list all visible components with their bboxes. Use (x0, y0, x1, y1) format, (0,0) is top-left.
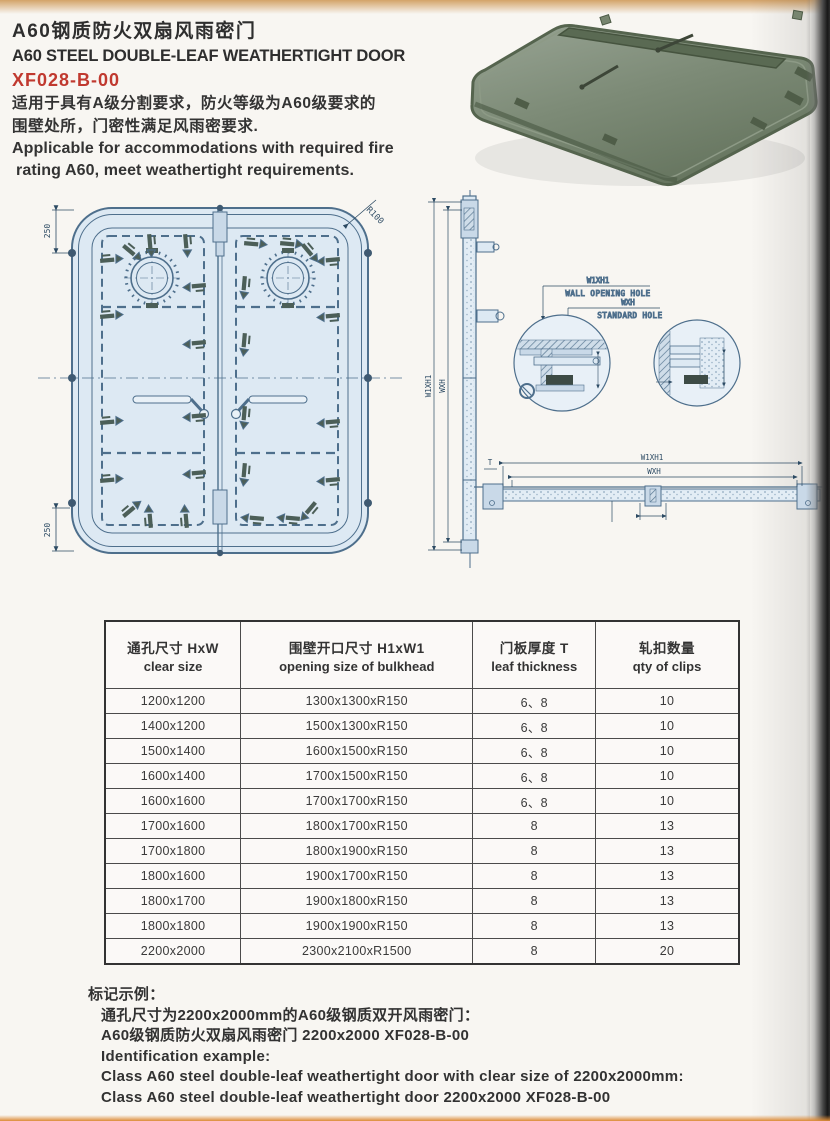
note-line: Identification example: (101, 1047, 748, 1068)
col-header-zh: 轧扣数量 (598, 637, 736, 657)
table-row: 1600x14001700x1500xR1506、810 (105, 764, 739, 789)
col-header-en: clear size (108, 659, 238, 674)
front-view: 250 250 R100 (38, 200, 402, 556)
spec-table: 通孔尺寸 HxW clear size 围壁开口尺寸 H1xW1 opening… (104, 620, 740, 965)
table-cell: 13 (596, 889, 739, 914)
table-row: 1500x14001600x1500xR1506、810 (105, 739, 739, 764)
detail-label: WALL OPENING HOLE (565, 289, 650, 298)
header: A60钢质防火双扇风雨密门 A60 STEEL DOUBLE-LEAF WEAT… (12, 20, 462, 182)
handle-pivot (579, 84, 584, 89)
table-header-row: 通孔尺寸 HxW clear size 围壁开口尺寸 H1xW1 opening… (105, 621, 739, 689)
table-cell: 10 (596, 764, 739, 789)
identification-example: 标记示例： 通孔尺寸为2200x2000mm的A60级钢质双开风雨密门： A60… (88, 985, 748, 1108)
table-row: 1800x17001900x1800xR150813 (105, 889, 739, 914)
note-line: Class A60 steel double-leaf weathertight… (101, 1088, 748, 1109)
detail-circles: W1XH1 WALL OPENING HOLE WXH STANDARD HOL… (514, 276, 740, 411)
side-view: W1XH1 WXH (424, 190, 504, 568)
detail-label: WXH (621, 298, 635, 307)
table-cell: 13 (596, 914, 739, 939)
col-header-zh: 门板厚度 T (475, 637, 593, 657)
detail-label: W1XH1 (587, 276, 610, 285)
detail-circle-standard-hole (654, 320, 740, 406)
table-cell: 1500x1400 (105, 739, 241, 764)
detail-circle-wall-opening (514, 315, 610, 411)
table-cell: 10 (596, 739, 739, 764)
table-cell: 1700x1500xR150 (241, 764, 473, 789)
horizontal-section: W1XH1 WXH T (474, 453, 827, 522)
dimension-label: W1XH1 (641, 453, 664, 462)
dimension-250-top: 250 (43, 210, 74, 253)
table-cell: 1800x1900xR150 (241, 839, 473, 864)
dimension-label: WXH (438, 379, 447, 393)
table-cell: 8 (473, 939, 596, 965)
table-cell: 1600x1400 (105, 764, 241, 789)
table-cell: 10 (596, 714, 739, 739)
table-row: 1700x16001800x1700xR150813 (105, 814, 739, 839)
table-cell: 1400x1200 (105, 714, 241, 739)
table-cell: 2200x2000 (105, 939, 241, 965)
model-number: XF028-B-00 (12, 68, 462, 92)
handle-pivot (655, 47, 660, 52)
description-zh-line2: 围壁处所，门密性满足风雨密要求. (12, 115, 462, 138)
table-cell: 13 (596, 839, 739, 864)
dimension-250-bottom: 250 (43, 508, 74, 551)
table-cell: 8 (473, 864, 596, 889)
col-header-zh: 通孔尺寸 HxW (108, 637, 238, 657)
table-cell: 6、8 (473, 739, 596, 764)
table-cell: 1700x1700xR150 (241, 789, 473, 814)
hinge-tab (600, 15, 611, 25)
note-line: 通孔尺寸为2200x2000mm的A60级钢质双开风雨密门： (101, 1006, 748, 1027)
table-cell: 10 (596, 789, 739, 814)
table-cell: 6、8 (473, 689, 596, 714)
page-title-en: A60 STEEL DOUBLE-LEAF WEATHERTIGHT DOOR (12, 45, 462, 67)
scan-edge-right (806, 0, 830, 1121)
table-cell: 1700x1600 (105, 814, 241, 839)
table-row: 1800x18001900x1900xR150813 (105, 914, 739, 939)
description-en-line2: rating A60, meet weathertight requiremen… (12, 160, 462, 182)
table-cell: 13 (596, 814, 739, 839)
table-cell: 1800x1700 (105, 889, 241, 914)
table-cell: 1900x1700xR150 (241, 864, 473, 889)
col-header-en: leaf thickness (475, 659, 593, 674)
dimension-label: T (488, 458, 493, 467)
dimension-label: 250 (43, 523, 52, 538)
col-header-leaf-thickness: 门板厚度 T leaf thickness (473, 621, 596, 689)
col-header-en: opening size of bulkhead (243, 659, 470, 674)
technical-drawings: 250 250 R100 (0, 190, 830, 590)
col-header-en: qty of clips (598, 659, 736, 674)
table-cell: 6、8 (473, 789, 596, 814)
table-cell: 1500x1300xR150 (241, 714, 473, 739)
table-cell: 6、8 (473, 764, 596, 789)
catalog-page: A60钢质防火双扇风雨密门 A60 STEEL DOUBLE-LEAF WEAT… (0, 0, 830, 1121)
table-cell: 1600x1500xR150 (241, 739, 473, 764)
dimension-label: R100 (364, 205, 386, 227)
product-photo (455, 8, 820, 198)
detail-label: STANDARD HOLE (597, 311, 662, 320)
dimension-label: WXH (647, 467, 661, 476)
table-cell: 1600x1600 (105, 789, 241, 814)
table-cell: 8 (473, 839, 596, 864)
description-zh-line1: 适用于具有A级分割要求，防火等级为A60级要求的 (12, 92, 462, 115)
table-row: 1600x16001700x1700xR1506、810 (105, 789, 739, 814)
table-cell: 13 (596, 864, 739, 889)
table-row: 2200x20002300x2100xR1500820 (105, 939, 739, 965)
dimension-label: 250 (43, 224, 52, 239)
scan-edge-bottom (0, 1115, 830, 1121)
table-cell: 1900x1900xR150 (241, 914, 473, 939)
hinge-tab (792, 10, 802, 19)
note-line: Class A60 steel double-leaf weathertight… (101, 1067, 748, 1088)
table-cell: 8 (473, 914, 596, 939)
table-row: 1700x18001800x1900xR150813 (105, 839, 739, 864)
table-cell: 1800x1800 (105, 914, 241, 939)
col-header-qty-clips: 轧扣数量 qty of clips (596, 621, 739, 689)
table-cell: 6、8 (473, 714, 596, 739)
col-header-clear-size: 通孔尺寸 HxW clear size (105, 621, 241, 689)
table-cell: 20 (596, 939, 739, 965)
table-cell: 1900x1800xR150 (241, 889, 473, 914)
table-cell: 2300x2100xR1500 (241, 939, 473, 965)
note-line: 标记示例： (88, 985, 748, 1006)
table-cell: 8 (473, 814, 596, 839)
col-header-opening-size: 围壁开口尺寸 H1xW1 opening size of bulkhead (241, 621, 473, 689)
col-header-zh: 围壁开口尺寸 H1xW1 (243, 637, 470, 657)
side-dimensions: W1XH1 WXH (424, 202, 462, 550)
table-row: 1400x12001500x1300xR1506、810 (105, 714, 739, 739)
table-row: 1800x16001900x1700xR150813 (105, 864, 739, 889)
table-cell: 1800x1700xR150 (241, 814, 473, 839)
table-cell: 1800x1600 (105, 864, 241, 889)
table-row: 1200x12001300x1300xR1506、810 (105, 689, 739, 714)
table-cell: 1300x1300xR150 (241, 689, 473, 714)
table-cell: 1200x1200 (105, 689, 241, 714)
description-en-line1: Applicable for accommodations with requi… (12, 138, 462, 160)
dimension-label: W1XH1 (424, 375, 433, 398)
table-cell: 1700x1800 (105, 839, 241, 864)
page-title-zh: A60钢质防火双扇风雨密门 (12, 20, 462, 44)
table-cell: 10 (596, 689, 739, 714)
table-cell: 8 (473, 889, 596, 914)
note-line: A60级钢质防火双扇风雨密门 2200x2000 XF028-B-00 (101, 1026, 748, 1047)
